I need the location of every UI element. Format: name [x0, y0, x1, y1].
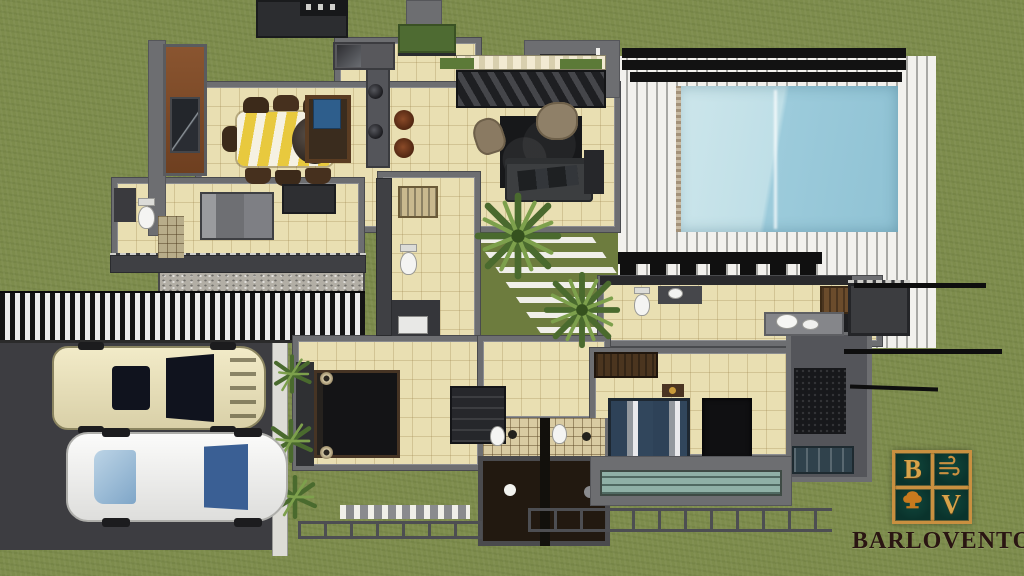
palm-shrub	[268, 348, 316, 400]
car-wheel	[234, 428, 262, 437]
sink-bowl	[802, 319, 819, 330]
dining-chair	[305, 168, 331, 184]
bedside-lamp	[320, 446, 333, 459]
media-glass-door	[792, 446, 854, 474]
island-cooktop	[313, 99, 341, 129]
linen-shelf	[398, 186, 438, 218]
monogram-b: B	[904, 456, 922, 483]
outdoor-kitchen-nook	[848, 280, 910, 336]
bar-stool	[394, 138, 414, 158]
kitchen-appliance	[337, 45, 361, 67]
nightstand-lamp	[669, 387, 676, 394]
eave-beam	[844, 349, 1002, 354]
toilet-tank	[634, 287, 650, 294]
bedroom-window-sill	[340, 505, 470, 519]
logo-cell-v: V	[934, 489, 970, 522]
aerial-render-scene: B V BARLOVENTO	[0, 0, 1024, 576]
car-windshield	[166, 354, 214, 422]
logo-cell-wind	[934, 453, 970, 486]
car-sunroof	[112, 366, 150, 410]
brand-wordmark: BARLOVENTO	[852, 528, 1018, 555]
bar-counter	[366, 68, 390, 168]
accent-wall-brown	[163, 44, 207, 176]
sink-bowl	[776, 314, 798, 329]
shower-drain-dark	[582, 432, 591, 441]
sink-bowl	[668, 288, 683, 299]
car-wheel	[234, 518, 262, 527]
master-railing	[528, 508, 832, 532]
hall-wall	[376, 178, 392, 336]
car-wheel	[78, 342, 104, 350]
hedge-planter	[440, 58, 474, 69]
guest-bed-blanket	[216, 194, 244, 238]
pendant-lamp	[368, 124, 383, 139]
pergola-beam	[622, 48, 906, 58]
roof-vents	[306, 4, 340, 10]
toilet	[552, 424, 567, 444]
car-white-sedan	[66, 428, 288, 526]
toilet	[634, 294, 650, 316]
brand-logo: B V	[892, 450, 972, 524]
wardrobe-dark	[282, 184, 336, 214]
bedside-lamp	[320, 372, 333, 385]
dining-chair	[243, 97, 269, 113]
master-rug	[702, 398, 752, 460]
vanity	[114, 188, 136, 222]
pergola-beam	[630, 72, 902, 82]
hall-counter-wall	[600, 276, 852, 285]
car-windshield	[204, 444, 248, 510]
garden-wall-south	[110, 253, 366, 273]
hedge-north	[398, 24, 456, 56]
master-dresser	[594, 352, 658, 378]
side-table	[584, 150, 604, 194]
skylight-strip	[600, 470, 782, 496]
tv-shelf-wall	[456, 70, 606, 108]
bedroom-railing	[298, 521, 482, 539]
pool-tile-edge	[676, 86, 681, 232]
armchair-tan	[536, 102, 578, 140]
dining-chair	[273, 95, 299, 111]
car-wheel	[102, 518, 130, 527]
window-pane	[170, 97, 200, 153]
monogram-v: V	[942, 491, 962, 518]
pool-water-highlight	[774, 90, 777, 229]
car-wheel	[210, 342, 236, 350]
logo-cell-tree	[895, 489, 931, 522]
palm-tree	[538, 266, 626, 354]
nightstand	[662, 384, 684, 397]
pergola-beam	[622, 60, 906, 70]
car-grille	[230, 358, 256, 418]
laundry-cabinet	[392, 300, 440, 336]
tree-icon	[899, 489, 926, 521]
toilet	[400, 252, 417, 275]
dining-chair	[245, 168, 271, 184]
washer-door	[398, 316, 428, 334]
car-cream-suv	[52, 344, 266, 432]
hedge-planter	[560, 59, 602, 69]
media-screen	[794, 368, 846, 434]
eave-beam	[854, 283, 986, 288]
pendant-lamp	[368, 84, 383, 99]
floor-light-white	[504, 484, 516, 496]
bar-stool	[394, 110, 414, 130]
swimming-pool	[676, 86, 898, 232]
logo-cell-b: B	[895, 453, 931, 486]
toilet	[138, 206, 155, 229]
dining-chair	[222, 126, 237, 152]
wind-icon	[936, 454, 966, 484]
car-rear-window	[94, 450, 136, 504]
car-wheel	[102, 428, 130, 437]
guest-bed-pillows	[202, 194, 216, 238]
shower-drain-dark	[508, 430, 517, 439]
shower-tiles	[158, 216, 184, 258]
guest-bed	[200, 192, 274, 240]
toilet	[490, 426, 505, 446]
toilet-tank	[400, 244, 417, 252]
toilet-tank	[138, 198, 155, 206]
